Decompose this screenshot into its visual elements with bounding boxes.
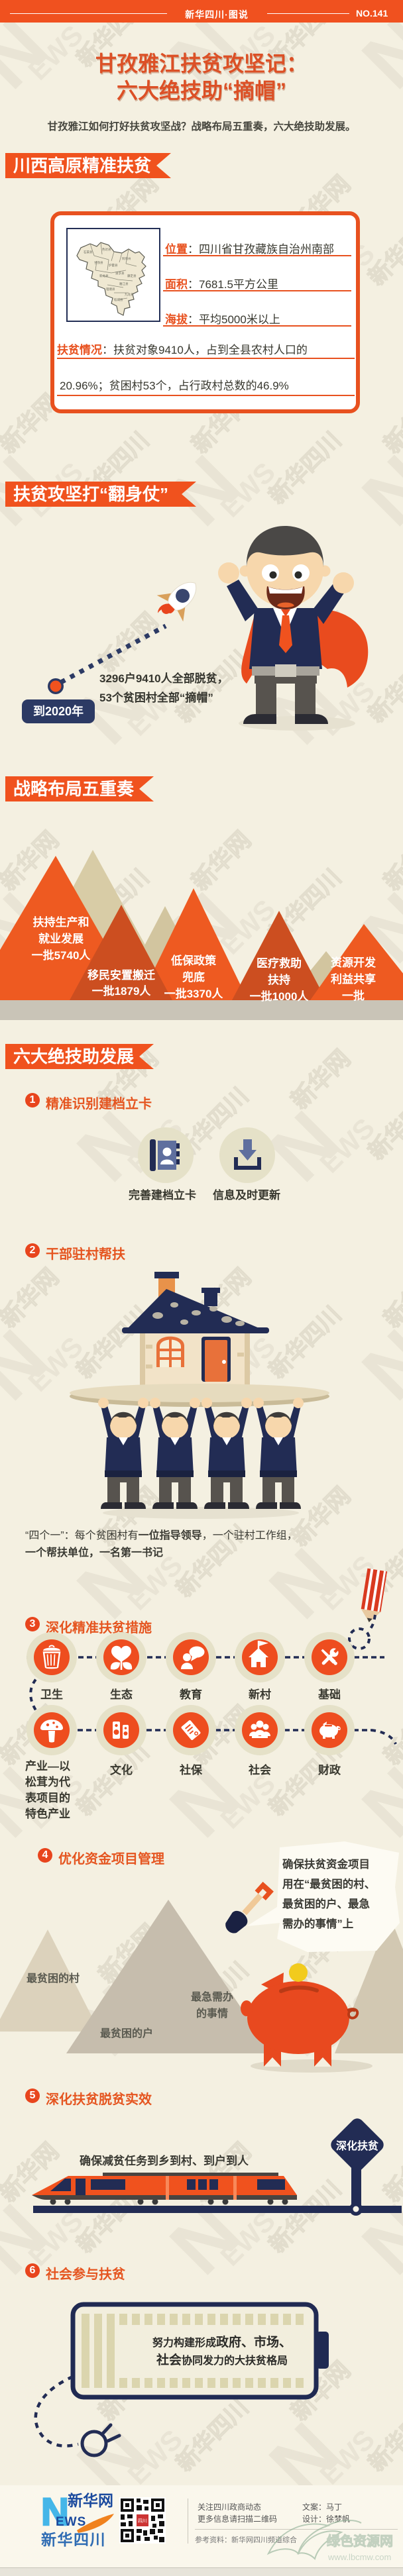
svg-text:阿坝州: 阿坝州 bbox=[122, 256, 131, 261]
svg-text:理塘县: 理塘县 bbox=[106, 287, 115, 291]
svg-text:甘孜县: 甘孜县 bbox=[94, 260, 103, 265]
svg-text:康定县: 康定县 bbox=[127, 274, 137, 278]
svg-text:炉霍县: 炉霍县 bbox=[109, 263, 118, 268]
svg-text:www.lbcmw.com: www.lbcmw.com bbox=[327, 2552, 391, 2562]
svg-text:一批1000人: 一批1000人 bbox=[250, 990, 310, 1003]
svg-text:一批3370人: 一批3370人 bbox=[164, 987, 224, 1000]
svg-text:石渠县: 石渠县 bbox=[84, 250, 93, 254]
svg-text:九龙县: 九龙县 bbox=[125, 292, 134, 297]
svg-text:资源开发: 资源开发 bbox=[331, 956, 376, 969]
svg-text:新华四川: 新华四川 bbox=[41, 2531, 106, 2548]
svg-text:新龙县: 新龙县 bbox=[99, 274, 109, 278]
svg-text:EWS: EWS bbox=[56, 2515, 86, 2529]
svg-text:一批: 一批 bbox=[342, 989, 365, 1002]
svg-text:兜底: 兜底 bbox=[182, 970, 205, 984]
svg-text:稻城县: 稻城县 bbox=[114, 297, 123, 302]
svg-text:移民安置搬迁: 移民安置搬迁 bbox=[87, 968, 155, 982]
svg-text:一批1879人: 一批1879人 bbox=[92, 984, 152, 998]
svg-text:医疗救助: 医疗救助 bbox=[257, 956, 302, 970]
svg-text:深化扶贫: 深化扶贫 bbox=[336, 2139, 379, 2152]
svg-text:绿色资源网: 绿色资源网 bbox=[327, 2533, 393, 2549]
svg-text:就业发展: 就业发展 bbox=[38, 932, 84, 945]
svg-text:利益共享: 利益共享 bbox=[331, 972, 376, 986]
svg-text:道孚县: 道孚县 bbox=[115, 271, 125, 276]
svg-text:新华网: 新华网 bbox=[68, 2492, 113, 2509]
svg-text:一批5740人: 一批5740人 bbox=[32, 949, 91, 962]
svg-text:色达县: 色达县 bbox=[102, 247, 111, 252]
svg-text:低保政策: 低保政策 bbox=[170, 954, 217, 967]
svg-text:扶持: 扶持 bbox=[268, 973, 290, 986]
svg-text:扶持生产和: 扶持生产和 bbox=[33, 915, 89, 929]
svg-text:雅江县: 雅江县 bbox=[119, 282, 129, 286]
svg-text:四川: 四川 bbox=[138, 2518, 147, 2524]
